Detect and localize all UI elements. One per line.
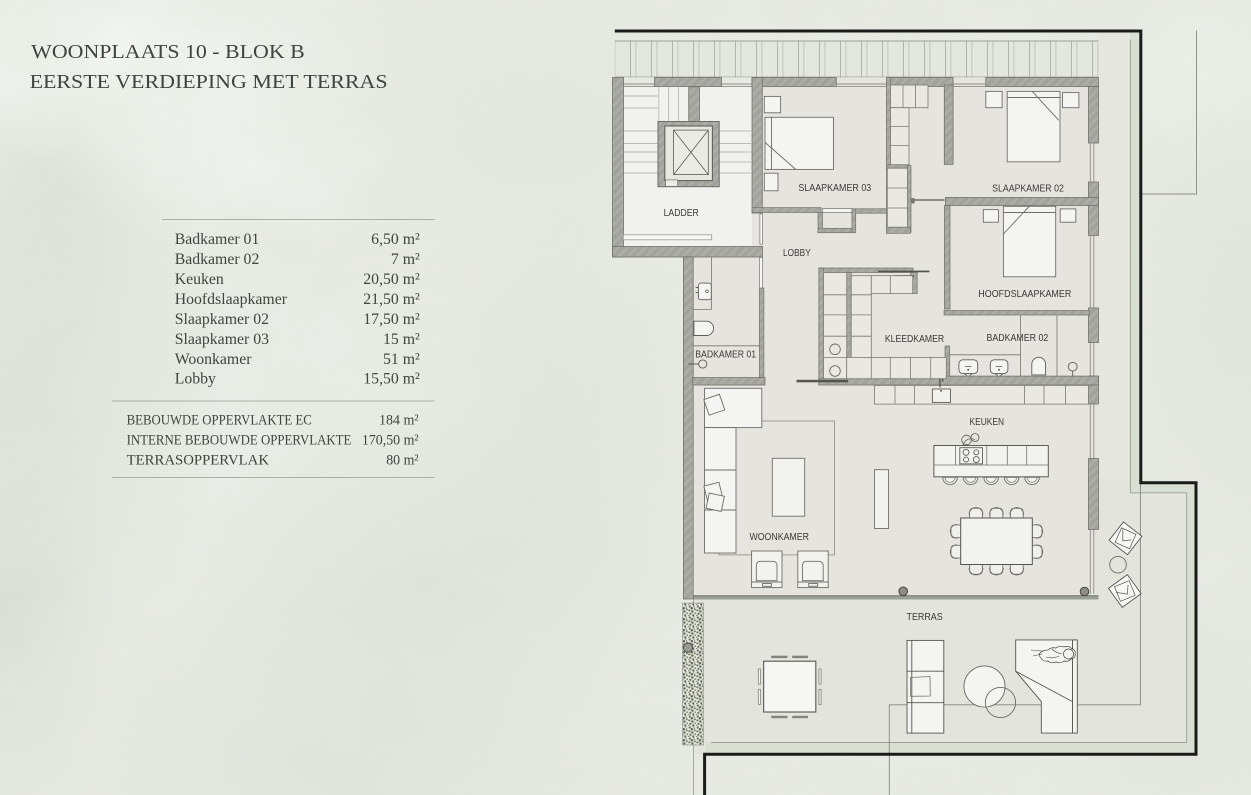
svg-text:SLAAPKAMER 03: SLAAPKAMER 03 — [798, 183, 871, 194]
svg-text:BEBOUWDE OPPERVLAKTE EC: BEBOUWDE OPPERVLAKTE EC — [127, 411, 312, 428]
svg-text:7 m²: 7 m² — [391, 251, 420, 268]
svg-text:WOONPLAATS 10 - BLOK B: WOONPLAATS 10 - BLOK B — [31, 41, 305, 63]
svg-text:Woonkamer: Woonkamer — [175, 351, 253, 368]
svg-text:Keuken: Keuken — [175, 271, 224, 288]
svg-text:21,50 m²: 21,50 m² — [363, 291, 420, 308]
svg-text:BADKAMER 01: BADKAMER 01 — [695, 349, 756, 360]
svg-text:170,50 m²: 170,50 m² — [362, 432, 419, 449]
svg-text:LADDER: LADDER — [664, 208, 699, 219]
svg-text:BADKAMER 02: BADKAMER 02 — [987, 333, 1049, 344]
svg-text:184 m²: 184 m² — [379, 411, 419, 428]
svg-text:WOONKAMER: WOONKAMER — [749, 532, 809, 543]
svg-text:15 m²: 15 m² — [383, 331, 420, 348]
svg-text:Slaapkamer 02: Slaapkamer 02 — [175, 311, 269, 328]
svg-text:15,50 m²: 15,50 m² — [363, 371, 420, 388]
svg-text:INTERNE BEBOUWDE OPPERVLAKTE: INTERNE BEBOUWDE OPPERVLAKTE — [127, 432, 352, 449]
svg-text:KEUKEN: KEUKEN — [970, 417, 1005, 428]
svg-text:Hoofdslaapkamer: Hoofdslaapkamer — [175, 291, 288, 308]
svg-text:EERSTE VERDIEPING MET TERRAS: EERSTE VERDIEPING MET TERRAS — [30, 71, 388, 93]
svg-text:SLAAPKAMER 02: SLAAPKAMER 02 — [992, 184, 1064, 195]
svg-text:LOBBY: LOBBY — [783, 248, 811, 259]
svg-text:Slaapkamer 03: Slaapkamer 03 — [175, 331, 269, 348]
svg-text:TERRAS: TERRAS — [907, 612, 944, 623]
svg-text:6,50 m²: 6,50 m² — [371, 231, 420, 248]
svg-text:Badkamer 02: Badkamer 02 — [175, 251, 260, 268]
svg-text:51 m²: 51 m² — [383, 351, 420, 368]
svg-text:20,50 m²: 20,50 m² — [363, 271, 420, 288]
svg-text:17,50 m²: 17,50 m² — [363, 311, 420, 328]
svg-text:KLEEDKAMER: KLEEDKAMER — [885, 334, 944, 345]
svg-text:Badkamer 01: Badkamer 01 — [175, 231, 260, 248]
svg-text:Lobby: Lobby — [175, 371, 216, 388]
svg-text:TERRASOPPERVLAK: TERRASOPPERVLAK — [127, 452, 269, 469]
svg-text:HOOFDSLAAPKAMER: HOOFDSLAAPKAMER — [978, 289, 1071, 300]
svg-text:80 m²: 80 m² — [386, 452, 419, 469]
